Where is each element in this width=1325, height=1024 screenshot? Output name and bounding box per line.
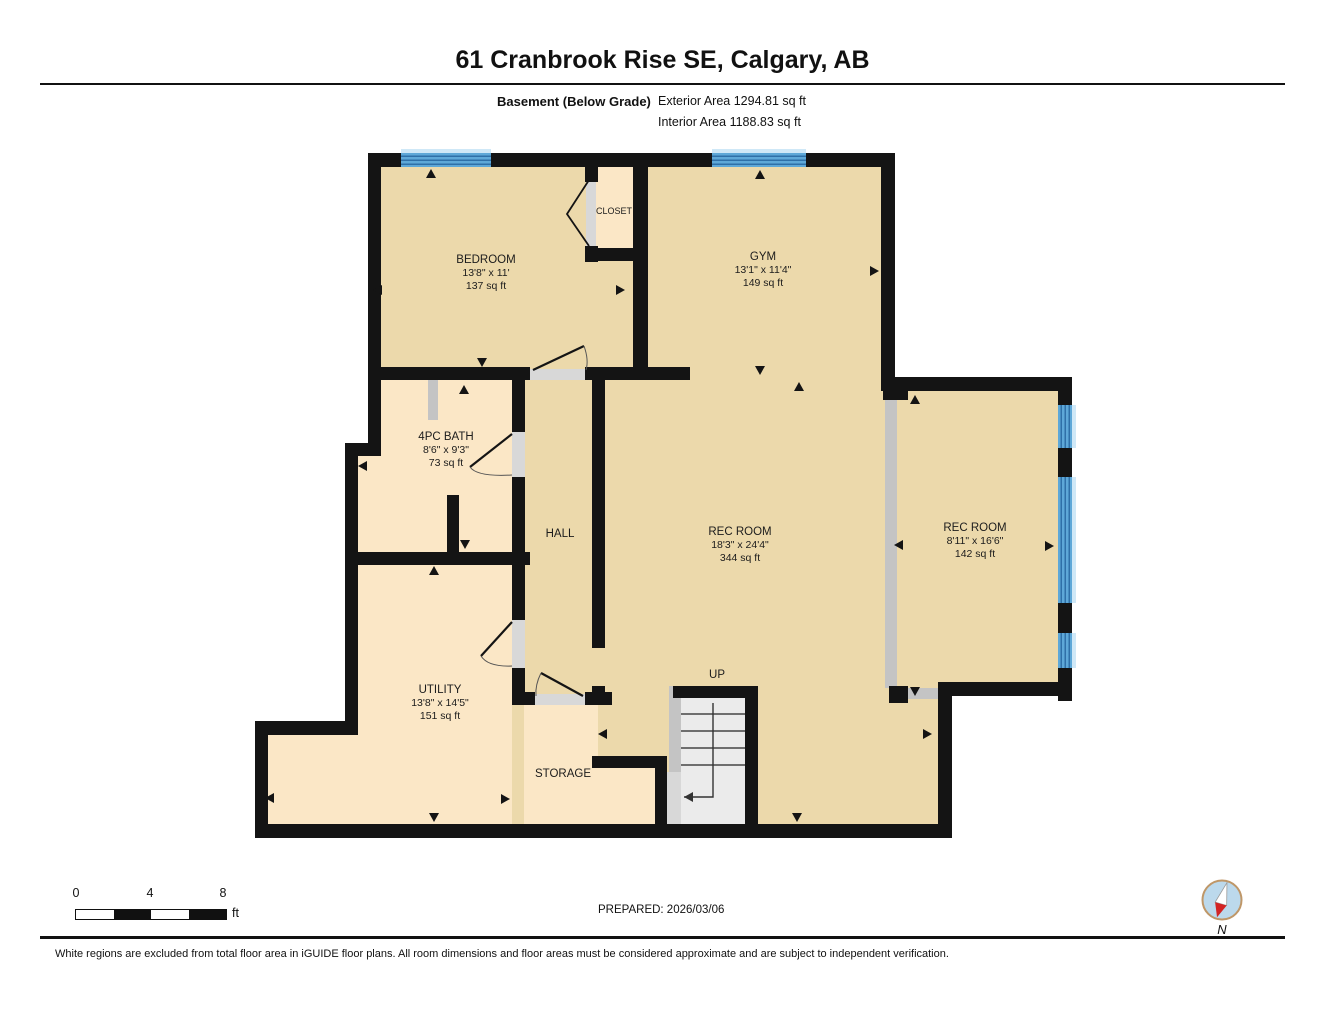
wall	[255, 721, 358, 735]
room-label-rec-room-2: REC ROOM 8'11" x 16'6" 142 sq ft	[943, 522, 1006, 561]
entry-arrow-icon	[426, 169, 436, 178]
floor-stairwell	[681, 698, 745, 828]
scale-unit: ft	[232, 906, 239, 920]
door-opening	[530, 369, 585, 380]
room-name: GYM	[735, 251, 792, 264]
entry-arrow-icon	[923, 729, 932, 739]
window	[1058, 633, 1072, 668]
room-dims: 13'8" x 11'	[456, 267, 515, 280]
scale-segment	[189, 910, 227, 919]
window-exterior-edge	[1072, 405, 1076, 448]
room-area: 142 sq ft	[943, 548, 1006, 561]
window-exterior-edge	[712, 149, 806, 153]
wall	[881, 153, 895, 390]
wall	[255, 824, 952, 838]
entry-arrow-icon	[429, 813, 439, 822]
scale-tick-8: 8	[216, 886, 230, 900]
entry-arrow-icon	[792, 813, 802, 822]
door-opening	[512, 620, 525, 668]
room-name: HALL	[546, 528, 575, 541]
room-label-bedroom: BEDROOM 13'8" x 11' 137 sq ft	[456, 254, 515, 293]
entry-arrow-icon	[373, 285, 382, 295]
room-name: REC ROOM	[943, 522, 1006, 535]
wall	[938, 682, 1072, 696]
wall	[368, 153, 381, 456]
wall	[938, 682, 952, 838]
entry-arrow-icon	[358, 461, 367, 471]
page-title: 61 Cranbrook Rise SE, Calgary, AB	[0, 46, 1325, 75]
room-area: 137 sq ft	[456, 280, 515, 293]
wall	[447, 495, 459, 552]
wall	[585, 692, 612, 705]
entry-arrow-icon	[616, 285, 625, 295]
stair-half-wall	[669, 686, 681, 772]
floor-label: Basement (Below Grade)	[497, 94, 651, 109]
window	[1058, 405, 1072, 448]
wall	[512, 565, 525, 620]
scale-segment	[151, 910, 189, 919]
room-name: CLOSET	[596, 206, 632, 216]
compass-icon	[1200, 878, 1244, 922]
wall	[345, 552, 530, 565]
entry-arrow-icon	[429, 566, 439, 575]
room-dims: 13'1" x 11'4"	[735, 264, 792, 277]
footer-divider	[40, 936, 1285, 939]
wall	[881, 377, 1072, 391]
entry-arrow-icon	[477, 358, 487, 367]
room-area: 149 sq ft	[735, 277, 792, 290]
scale-tick-0: 0	[69, 886, 83, 900]
entry-arrow-icon	[265, 793, 274, 803]
entry-arrow-icon	[894, 540, 903, 550]
floor-plan-page: { "header": { "title": "61 Cranbrook Ris…	[0, 0, 1325, 1024]
room-area: 73 sq ft	[418, 457, 473, 470]
room-dims: 8'11" x 16'6"	[943, 535, 1006, 548]
entry-arrow-icon	[755, 366, 765, 375]
window-exterior-edge	[1072, 477, 1076, 603]
room-label-closet: CLOSET	[596, 206, 632, 216]
window-exterior-edge	[401, 149, 491, 153]
scale-bar	[75, 909, 227, 920]
entry-arrow-icon	[1045, 541, 1054, 551]
window	[401, 153, 491, 167]
stairs-up-label: UP	[709, 669, 725, 682]
wall	[255, 726, 268, 838]
bath-fixture	[428, 380, 438, 420]
entry-arrow-icon	[794, 382, 804, 391]
wall	[368, 367, 530, 380]
entry-arrow-icon	[598, 729, 607, 739]
wall	[889, 686, 908, 703]
room-area: 151 sq ft	[411, 710, 469, 723]
room-name: BEDROOM	[456, 254, 515, 267]
room-area: 344 sq ft	[708, 552, 771, 565]
entry-arrow-icon	[910, 395, 920, 404]
floor-storage	[524, 698, 598, 828]
wall	[585, 166, 598, 182]
floor-rec-room-lower	[888, 688, 945, 828]
room-label-rec-room: REC ROOM 18'3" x 24'4" 344 sq ft	[708, 526, 771, 565]
disclaimer-text: White regions are excluded from total fl…	[55, 948, 949, 960]
room-label-gym: GYM 13'1" x 11'4" 149 sq ft	[735, 251, 792, 290]
room-label-storage: STORAGE	[535, 768, 591, 781]
wall	[512, 374, 525, 432]
room-name: REC ROOM	[708, 526, 771, 539]
door-opening	[535, 694, 585, 705]
floor-storage-right	[598, 768, 658, 828]
closet-opening	[586, 182, 596, 246]
header-divider	[40, 83, 1285, 85]
window	[712, 153, 806, 167]
interior-area: Interior Area 1188.83 sq ft	[658, 115, 801, 129]
entry-arrow-icon	[501, 794, 510, 804]
entry-arrow-icon	[459, 385, 469, 394]
room-name: UP	[709, 669, 725, 682]
floor-utility-lower	[262, 728, 512, 828]
room-label-bath: 4PC BATH 8'6" x 9'3" 73 sq ft	[418, 431, 473, 470]
wall	[512, 692, 535, 705]
wall	[745, 686, 758, 838]
entry-arrow-icon	[755, 170, 765, 179]
wall	[883, 377, 908, 400]
prepared-date: PREPARED: 2026/03/06	[598, 904, 724, 916]
room-dims: 8'6" x 9'3"	[418, 444, 473, 457]
wall	[345, 449, 358, 735]
entry-arrow-icon	[460, 540, 470, 549]
entry-arrow-icon	[639, 266, 648, 276]
scale-tick-4: 4	[143, 886, 157, 900]
wall	[655, 762, 667, 838]
entry-arrow-icon	[870, 266, 879, 276]
entry-arrow-icon	[910, 687, 920, 696]
scale-segment	[76, 910, 114, 919]
wall	[585, 246, 598, 262]
room-name: UTILITY	[411, 684, 469, 697]
door-opening	[512, 432, 525, 477]
window-exterior-edge	[1072, 633, 1076, 668]
room-dims: 18'3" x 24'4"	[708, 539, 771, 552]
exterior-area: Exterior Area 1294.81 sq ft	[658, 94, 806, 108]
window	[1058, 477, 1072, 603]
room-name: STORAGE	[535, 768, 591, 781]
room-label-hall: HALL	[546, 528, 575, 541]
compass-north-label: N	[1208, 922, 1236, 937]
room-dims: 13'8" x 14'5"	[411, 697, 469, 710]
room-label-utility: UTILITY 13'8" x 14'5" 151 sq ft	[411, 684, 469, 723]
scale-segment	[114, 910, 152, 919]
room-name: 4PC BATH	[418, 431, 473, 444]
wall	[592, 380, 605, 648]
